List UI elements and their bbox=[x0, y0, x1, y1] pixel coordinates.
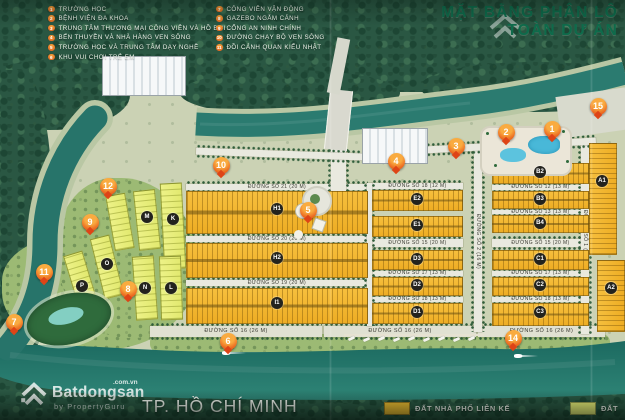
legend-label-villa: ĐẤT bbox=[601, 404, 618, 413]
batdongsan-suffix-watermark: .com.vn bbox=[113, 379, 138, 386]
legend-item: 7CÔNG VIÊN VẬN ĐỘNG bbox=[216, 5, 304, 13]
legend-number-bullet: 7 bbox=[216, 6, 223, 13]
legend-item: 11ĐỒI CẢNH QUAN KIỂU NHẬT bbox=[216, 43, 321, 51]
legend-amenities-col2: 7CÔNG VIÊN VẬN ĐỘNG8GAZEBO NGẮM CẢNH9CỔN… bbox=[0, 0, 625, 420]
legend-swatch-townhouse bbox=[384, 402, 410, 415]
legend-item: 8GAZEBO NGẮM CẢNH bbox=[216, 15, 299, 23]
batdongsan-brand-watermark: Batdongsan bbox=[52, 384, 145, 402]
legend-item-label: ĐỒI CẢNH QUAN KIỂU NHẬT bbox=[227, 44, 322, 51]
legend-swatch-villa bbox=[570, 402, 596, 415]
masterplan-poster: ĐƯỜNG SỐ 21 (20 M)ĐƯỜNG SỐ 20 (20 M)ĐƯỜN… bbox=[0, 0, 625, 420]
legend-item-label: GAZEBO NGẮM CẢNH bbox=[227, 15, 300, 22]
legend-number-bullet: 10 bbox=[216, 35, 223, 42]
city-label: TP. HỒ CHÍ MINH bbox=[142, 396, 298, 417]
legend-item: 9CỔNG AN NINH CHÍNH bbox=[216, 24, 301, 32]
legend-label-townhouse: ĐẤT NHÀ PHỐ LIÊN KẾ bbox=[415, 404, 510, 413]
poster-title: MẶT BẰNG PHÂN LÔ TOÀN DỰ ÁN bbox=[441, 4, 618, 40]
legend-item-label: CÔNG VIÊN VẬN ĐỘNG bbox=[227, 6, 305, 13]
legend-item: 10ĐƯỜNG CHẠY BỘ VEN SÔNG bbox=[216, 34, 325, 42]
propertyguru-byline-watermark: by PropertyGuru bbox=[54, 402, 126, 411]
legend-number-bullet: 11 bbox=[216, 44, 223, 51]
poster-title-line1: MẶT BẰNG PHÂN LÔ bbox=[441, 4, 618, 22]
legend-item-label: ĐƯỜNG CHẠY BỘ VEN SÔNG bbox=[227, 34, 325, 41]
poster-title-line2: TOÀN DỰ ÁN bbox=[441, 22, 618, 40]
legend-number-bullet: 8 bbox=[216, 15, 223, 22]
batdongsan-logo-icon bbox=[18, 379, 50, 411]
legend-item-label: CỔNG AN NINH CHÍNH bbox=[227, 25, 302, 32]
legend-number-bullet: 9 bbox=[216, 25, 223, 32]
